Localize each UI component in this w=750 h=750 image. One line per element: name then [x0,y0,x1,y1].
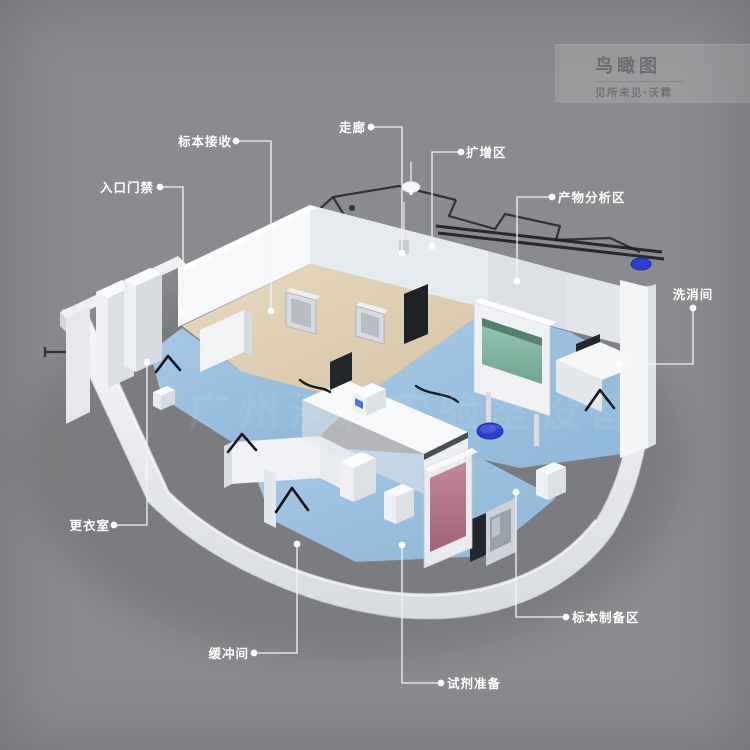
area-label-text: 扩增区 [466,145,507,160]
view-title: 鸟瞰图 [595,52,750,78]
leader-line [432,152,461,246]
leader-label-dot [368,124,375,131]
leader-end-dot [616,361,623,368]
leader-end-dot [514,278,521,285]
leader-end-dot [144,359,151,366]
leader-label-dot [549,194,556,201]
title-panel: 鸟瞰图 见所未见·沃霖 [555,44,750,103]
leader-label-dot [251,650,258,657]
leader-label-dot [690,305,697,312]
area-label-text: 更衣室 [69,518,110,533]
area-label-text: 走廊 [339,120,366,135]
leader-end-dot [268,308,275,315]
leader-end-dot [294,541,301,548]
leader-label-dot [563,614,570,621]
lab-3d-scene: 标本接收入口门禁走廊扩增区产物分析区洗消间更衣室缓冲间试剂准备标本制备区 [0,0,750,750]
leader-label-dot [233,138,240,145]
area-label-text: 入口门禁 [100,180,154,195]
leader-label-dot [458,149,465,156]
area-label-text: 缓冲间 [208,646,249,661]
leader-label-dot [438,680,445,687]
leader-end-dot [399,250,406,257]
birdseye-render: 标本接收入口门禁走廊扩增区产物分析区洗消间更衣室缓冲间试剂准备标本制备区 广州沃… [0,0,750,750]
leader-label-dot [111,522,118,529]
leader-label-dot [157,184,164,191]
leader-end-dot [429,243,436,250]
leader-end-dot [399,542,406,549]
brand-subtitle: 见所未见·沃霖 [595,85,750,100]
leader-end-dot [180,309,187,316]
area-label-text: 试剂准备 [447,676,501,691]
leader-end-dot [513,489,520,496]
title-divider [595,81,683,82]
area-label-text: 标本制备区 [571,610,640,625]
area-label-text: 产物分析区 [558,190,626,205]
area-label-text: 洗消间 [673,287,714,302]
area-label-text: 标本接收 [177,134,232,149]
